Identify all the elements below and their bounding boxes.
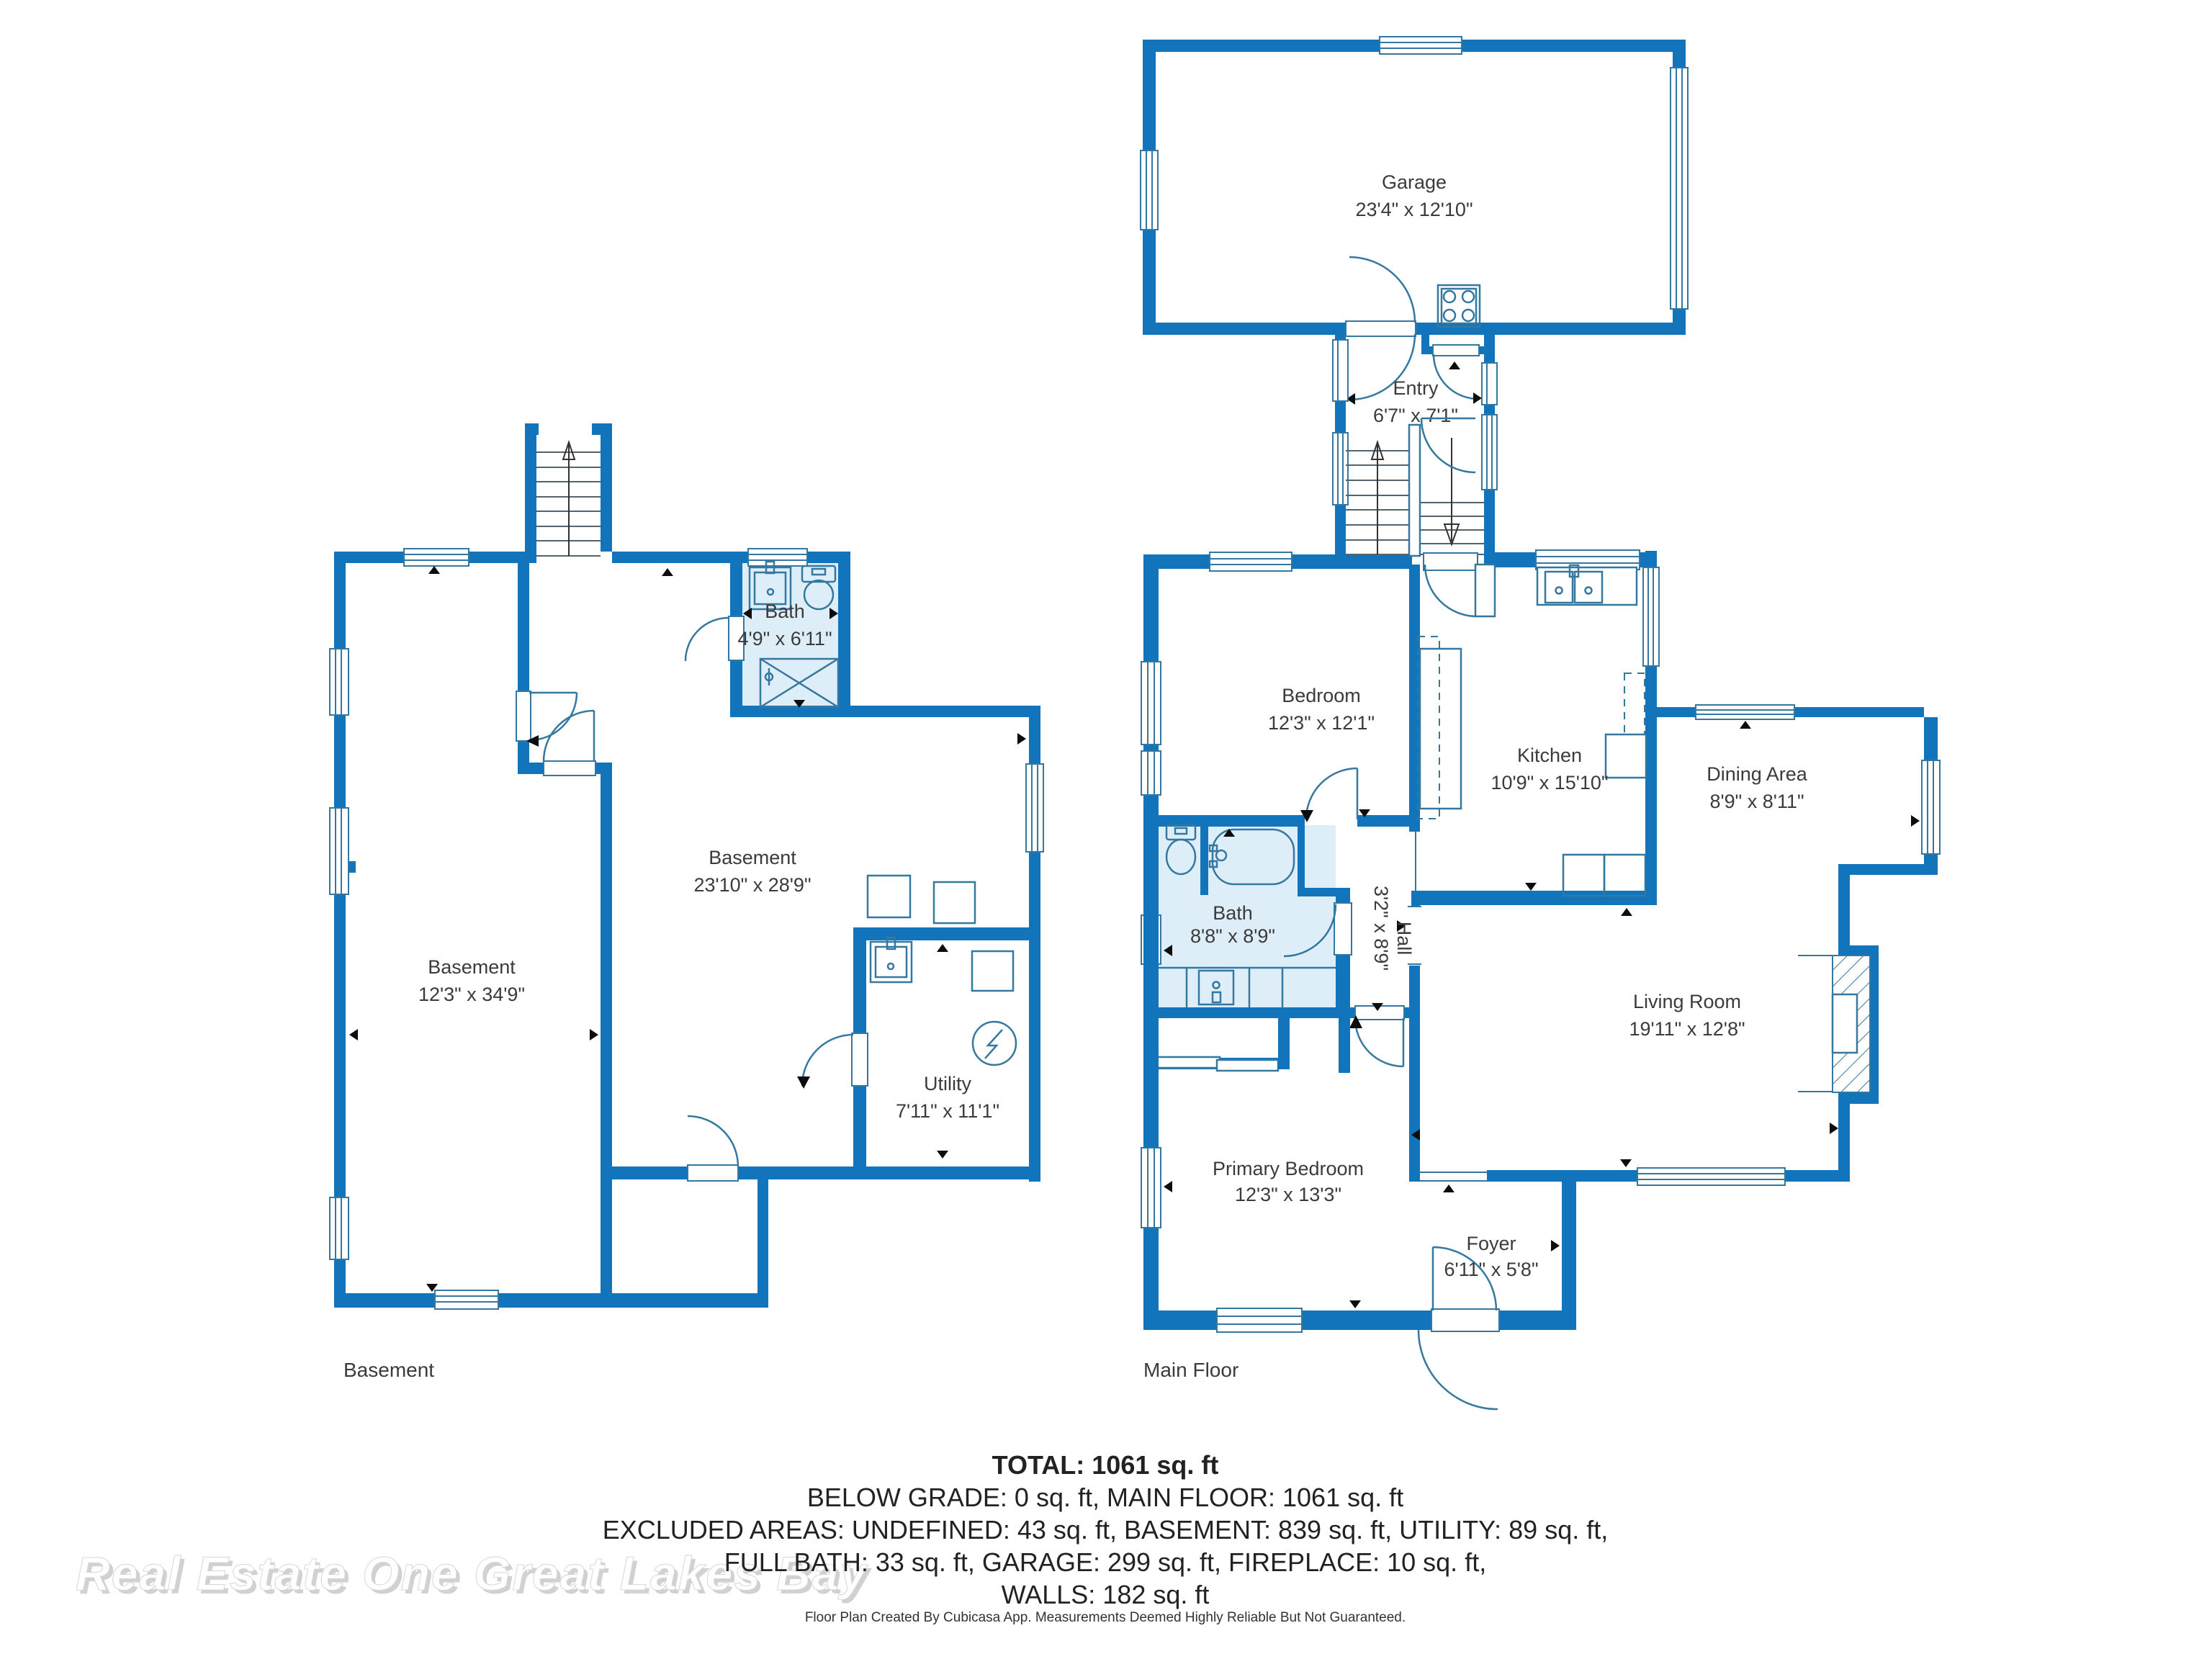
svg-text:Basement: Basement	[428, 956, 516, 978]
svg-text:Living Room: Living Room	[1633, 991, 1741, 1012]
svg-text:Primary Bedroom: Primary Bedroom	[1213, 1158, 1364, 1179]
svg-text:Basement: Basement	[343, 1359, 434, 1381]
svg-text:Bedroom: Bedroom	[1282, 685, 1361, 706]
svg-text:6'11" x 5'8": 6'11" x 5'8"	[1444, 1259, 1538, 1280]
svg-text:4'9" x 6'11": 4'9" x 6'11"	[737, 628, 832, 649]
svg-text:23'10" x 28'9": 23'10" x 28'9"	[693, 874, 811, 896]
svg-text:Bath: Bath	[765, 601, 805, 622]
svg-text:23'4" x 12'10": 23'4" x 12'10"	[1355, 199, 1473, 220]
svg-text:8'8" x 8'9": 8'8" x 8'9"	[1190, 925, 1275, 947]
svg-text:19'11" x 12'8": 19'11" x 12'8"	[1629, 1018, 1745, 1040]
svg-text:12'3" x 13'3": 12'3" x 13'3"	[1235, 1184, 1341, 1205]
svg-text:Hall: Hall	[1393, 922, 1415, 956]
svg-text:BELOW GRADE: 0 sq. ft, MAIN FL: BELOW GRADE: 0 sq. ft, MAIN FLOOR: 1061 …	[807, 1483, 1403, 1512]
svg-text:FULL BATH: 33 sq. ft, GARAGE:: FULL BATH: 33 sq. ft, GARAGE: 299 sq. ft…	[724, 1547, 1486, 1577]
svg-text:Dining Area: Dining Area	[1707, 763, 1808, 785]
svg-text:WALLS: 182 sq. ft: WALLS: 182 sq. ft	[1002, 1580, 1210, 1609]
svg-text:Floor Plan Created By Cubicasa: Floor Plan Created By Cubicasa App. Meas…	[805, 1610, 1406, 1625]
svg-text:7'11" x 11'1": 7'11" x 11'1"	[896, 1100, 999, 1122]
svg-text:10'9" x 15'10": 10'9" x 15'10"	[1491, 772, 1608, 793]
svg-text:6'7" x 7'1": 6'7" x 7'1"	[1373, 405, 1458, 426]
svg-text:TOTAL: 1061 sq. ft: TOTAL: 1061 sq. ft	[992, 1450, 1219, 1480]
svg-text:12'3" x 34'9": 12'3" x 34'9"	[418, 984, 525, 1005]
svg-text:Foyer: Foyer	[1466, 1233, 1516, 1254]
svg-text:Bath: Bath	[1213, 902, 1253, 924]
svg-text:8'9" x 8'11": 8'9" x 8'11"	[1709, 791, 1804, 812]
svg-text:Basement: Basement	[709, 847, 796, 868]
svg-text:EXCLUDED AREAS: UNDEFINED: 43: EXCLUDED AREAS: UNDEFINED: 43 sq. ft, BA…	[603, 1515, 1608, 1545]
svg-text:Entry: Entry	[1393, 377, 1439, 399]
svg-text:3'2" x 8'9": 3'2" x 8'9"	[1370, 886, 1392, 971]
svg-text:Kitchen: Kitchen	[1517, 745, 1582, 766]
svg-text:Garage: Garage	[1382, 171, 1447, 193]
svg-text:Main Floor: Main Floor	[1143, 1359, 1238, 1381]
svg-text:12'3" x 12'1": 12'3" x 12'1"	[1268, 712, 1375, 734]
svg-text:Utility: Utility	[924, 1073, 971, 1094]
